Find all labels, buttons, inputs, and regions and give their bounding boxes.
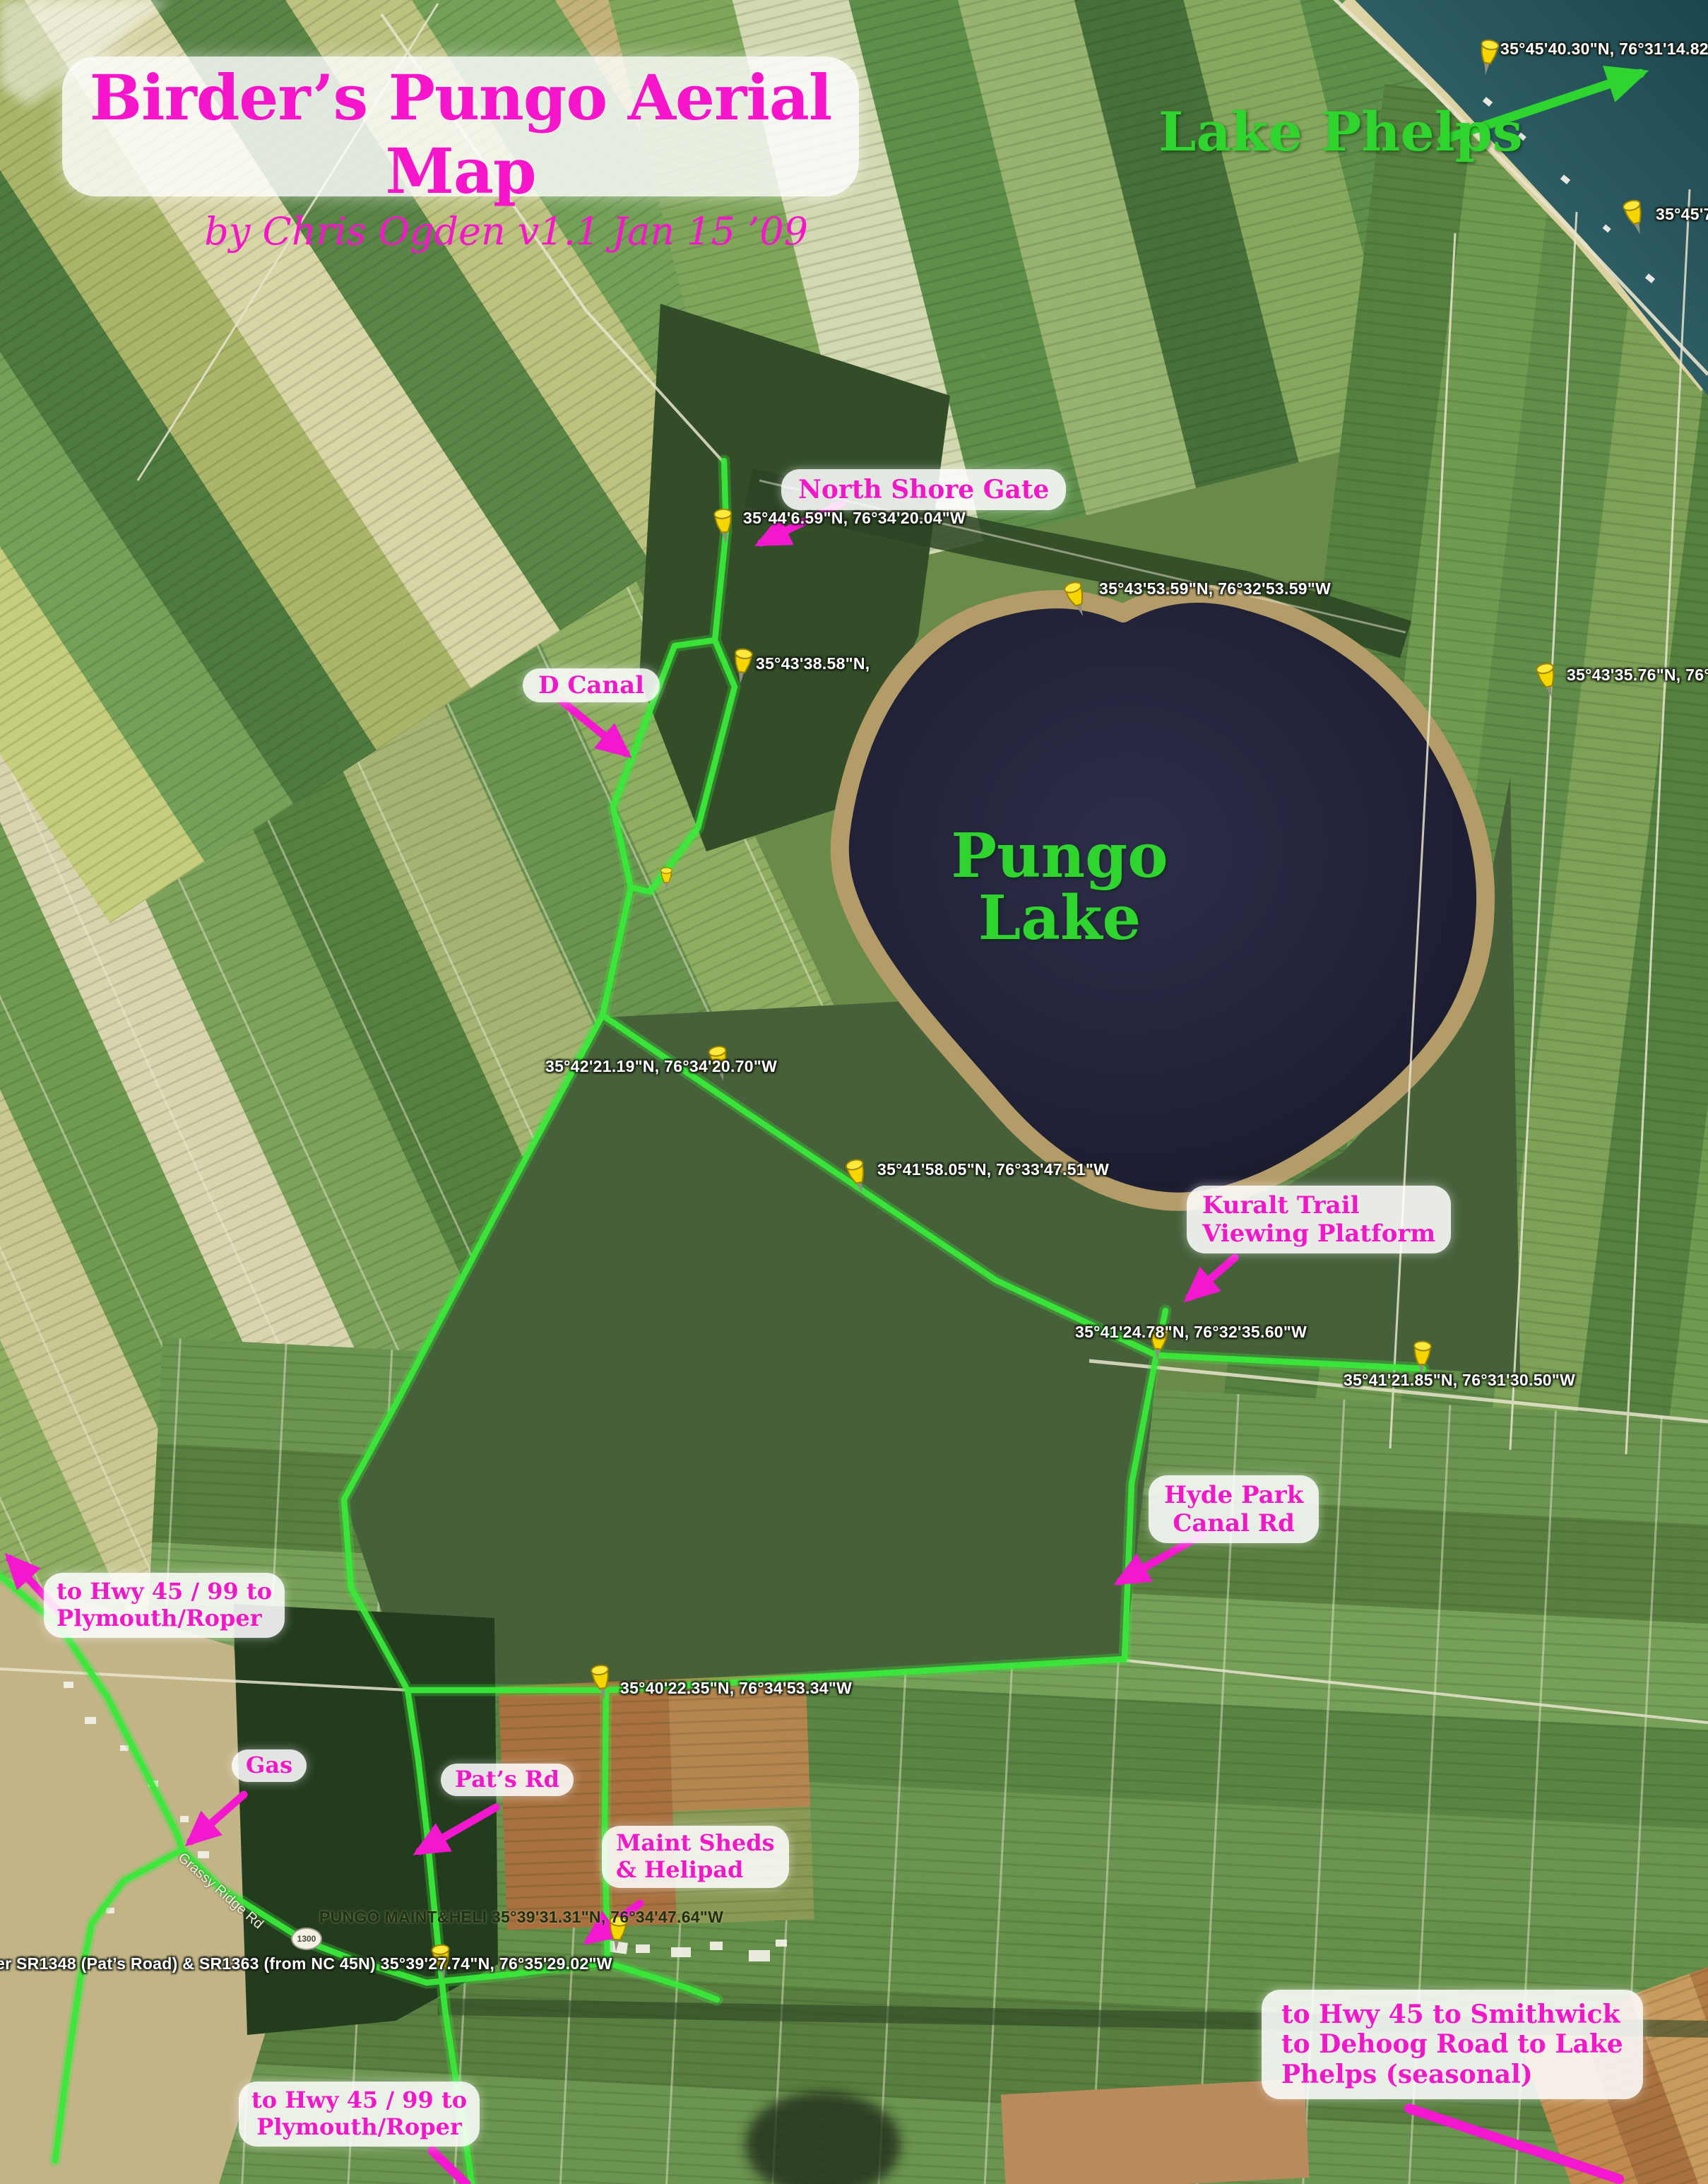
gps-label-junction: er SR1348 (Pat’s Road) & SR1363 (from NC… xyxy=(0,1954,612,1973)
seasonal-label-line1: to Hwy 45 to Smithwick xyxy=(1281,2000,1623,2029)
callout-hwy-northwest: to Hwy 45 / 99 to Plymouth/Roper xyxy=(44,1573,285,1638)
pungo-lake-label: Pungo Lake xyxy=(932,825,1187,949)
gps-label-east: 35°43'35.76"N, 76°30'59.2 xyxy=(1567,666,1708,685)
pats-rd-label: Pat’s Rd xyxy=(455,1766,559,1793)
maint-label-line2: & Helipad xyxy=(616,1857,775,1884)
page-subtitle: by Chris Ogden v1.1 Jan 15 ’09 xyxy=(62,209,859,254)
gps-label-south-lake: 35°41'58.05"N, 76°33'47.51"W xyxy=(877,1160,1109,1179)
gps-label-maint: PUNGO MAINT&HELI 35°39'31.31"N, 76°34'47… xyxy=(319,1908,723,1927)
gps-label-d-canal: 35°43'38.58"N, xyxy=(756,654,870,673)
callout-kuralt: Kuralt Trail Viewing Platform xyxy=(1187,1186,1451,1253)
gps-label-phelps-shore: 35°45'40.30"N, 76°31'14.82"W xyxy=(1500,40,1708,59)
hwy-nw-label-line2: Plymouth/Roper xyxy=(57,1605,272,1632)
north-shore-gate-label: North Shore Gate xyxy=(798,475,1049,504)
gas-label: Gas xyxy=(246,1752,292,1779)
callout-hyde-park: Hyde Park Canal Rd xyxy=(1149,1475,1319,1543)
aerial-basemap xyxy=(0,0,1708,2184)
pungo-lake-label-line1: Pungo xyxy=(932,825,1187,887)
maint-label-line1: Maint Sheds xyxy=(616,1830,775,1857)
hwy-s-label-line1: to Hwy 45 / 99 to xyxy=(251,2087,467,2114)
gps-label-phelps-partial: 35°45'7.76 xyxy=(1656,205,1708,224)
hyde-park-label-line1: Hyde Park xyxy=(1164,1481,1303,1509)
hwy-nw-label-line1: to Hwy 45 / 99 to xyxy=(57,1578,272,1605)
pungo-lake-label-line2: Lake xyxy=(932,887,1187,950)
callout-maint-sheds: Maint Sheds & Helipad xyxy=(602,1826,789,1888)
d-canal-label: D Canal xyxy=(538,671,644,700)
gps-label-northeast: 35°43'53.59"N, 76°32'53.59"W xyxy=(1099,579,1331,598)
seasonal-label-line3: Phelps (seasonal) xyxy=(1281,2060,1623,2089)
map-title-box: Birder’s Pungo Aerial Map by Chris Ogden… xyxy=(62,57,859,196)
gps-label-field: 35°40'22.35"N, 76°34'53.34"W xyxy=(620,1679,852,1698)
lake-phelps-label: Lake Phelps xyxy=(1158,100,1523,163)
hyde-park-label-line2: Canal Rd xyxy=(1164,1509,1303,1537)
callout-north-shore-gate: North Shore Gate xyxy=(781,469,1066,510)
callout-hwy-south: to Hwy 45 / 99 to Plymouth/Roper xyxy=(239,2082,480,2147)
kuralt-label-line1: Kuralt Trail xyxy=(1202,1191,1435,1220)
callout-seasonal-route: to Hwy 45 to Smithwick to Dehoog Road to… xyxy=(1262,1990,1643,2099)
page-title: Birder’s Pungo Aerial Map xyxy=(62,61,859,208)
kuralt-label-line2: Viewing Platform xyxy=(1202,1220,1435,1248)
road-marker-text: 1300 xyxy=(297,1934,316,1944)
gps-label-north-gate: 35°44'6.59"N, 76°34'20.04"W xyxy=(743,509,966,528)
gps-label-kuralt-junction: 35°41'24.78"N, 76°32'35.60"W xyxy=(1075,1323,1307,1342)
callout-d-canal: D Canal xyxy=(523,668,660,702)
seasonal-label-line2: to Dehoog Road to Lake xyxy=(1281,2029,1623,2059)
hwy-s-label-line2: Plymouth/Roper xyxy=(251,2114,467,2141)
gps-label-east-end: 35°41'21.85"N, 76°31'30.50"W xyxy=(1344,1371,1575,1390)
callout-gas: Gas xyxy=(232,1749,307,1782)
aerial-map-page: Birder’s Pungo Aerial Map by Chris Ogden… xyxy=(0,0,1708,2184)
road-marker-badge: 1300 xyxy=(291,1928,322,1950)
callout-pats-rd: Pat’s Rd xyxy=(441,1764,574,1796)
gps-label-west: 35°42'21.19"N, 76°34'20.70"W xyxy=(545,1057,777,1076)
